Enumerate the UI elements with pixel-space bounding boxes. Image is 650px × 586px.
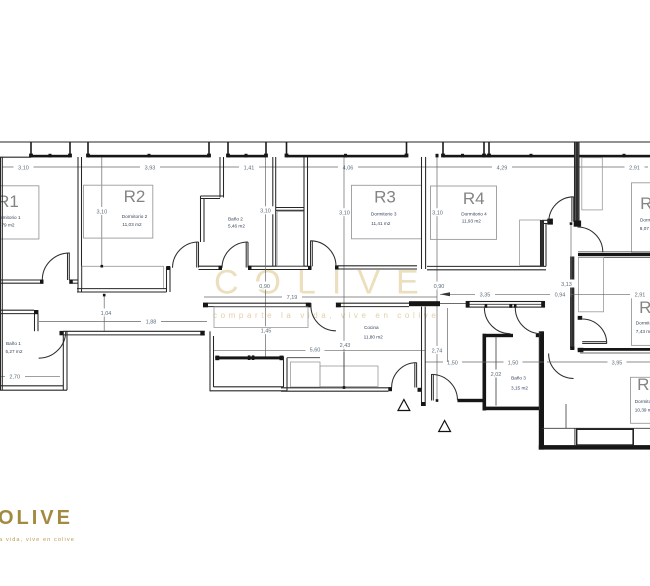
svg-text:Dormitorio 6: Dormitorio 6 — [636, 321, 650, 326]
svg-text:3,10: 3,10 — [18, 165, 29, 171]
svg-text:1,50: 1,50 — [508, 360, 519, 366]
svg-text:Cocina: Cocina — [364, 325, 379, 330]
svg-text:COLIVE: COLIVE — [0, 507, 73, 529]
svg-text:R1: R1 — [0, 192, 19, 211]
svg-text:R7: R7 — [637, 375, 650, 394]
svg-text:Baño 3: Baño 3 — [511, 376, 526, 381]
svg-text:Dormitorio 7: Dormitorio 7 — [635, 399, 650, 404]
svg-text:R5: R5 — [640, 194, 650, 213]
svg-text:3,95: 3,95 — [612, 361, 623, 367]
svg-text:4,29: 4,29 — [497, 165, 508, 171]
svg-text:0,90: 0,90 — [434, 284, 445, 290]
svg-text:Baño 1: Baño 1 — [6, 341, 21, 346]
svg-text:3,93: 3,93 — [145, 165, 156, 171]
svg-text:7,43 m2: 7,43 m2 — [636, 329, 650, 334]
svg-text:1,88: 1,88 — [146, 319, 157, 325]
svg-text:3,10: 3,10 — [339, 211, 350, 217]
svg-text:3,10: 3,10 — [260, 209, 271, 215]
svg-text:1,41: 1,41 — [244, 165, 255, 171]
svg-text:Dormitorio 4: Dormitorio 4 — [461, 212, 487, 217]
svg-text:10,39 m2: 10,39 m2 — [635, 408, 650, 413]
svg-text:2,74: 2,74 — [432, 348, 443, 354]
svg-text:5,46 m2: 5,46 m2 — [228, 224, 245, 229]
svg-text:1,50: 1,50 — [447, 360, 458, 366]
svg-text:11,03 m2: 11,03 m2 — [122, 222, 142, 227]
svg-text:11,41 m2: 11,41 m2 — [371, 221, 391, 226]
svg-text:3,13: 3,13 — [561, 282, 572, 288]
svg-text:7,19: 7,19 — [287, 295, 298, 301]
svg-text:2,70: 2,70 — [9, 375, 20, 381]
svg-text:3,10: 3,10 — [96, 209, 107, 215]
svg-text:3,15 m2: 3,15 m2 — [511, 386, 528, 391]
svg-text:R4: R4 — [463, 189, 485, 208]
svg-text:0,90: 0,90 — [259, 284, 270, 290]
svg-text:3,35: 3,35 — [480, 293, 491, 299]
svg-text:Dormitorio 3: Dormitorio 3 — [371, 211, 397, 216]
svg-text:Dormitorio 1: Dormitorio 1 — [0, 215, 21, 220]
svg-text:R3: R3 — [374, 188, 396, 207]
svg-text:11,80 m2: 11,80 m2 — [364, 335, 384, 340]
svg-text:comparte la vida, vive en coli: comparte la vida, vive en colive — [213, 311, 439, 320]
svg-text:R2: R2 — [124, 187, 146, 206]
svg-text:0,94: 0,94 — [555, 293, 566, 299]
svg-text:Dormitorio 5: Dormitorio 5 — [640, 218, 650, 223]
svg-text:Baño 2: Baño 2 — [228, 217, 243, 222]
svg-text:Dormitorio 2: Dormitorio 2 — [122, 214, 148, 219]
svg-text:2,91: 2,91 — [629, 165, 640, 171]
svg-text:2,43: 2,43 — [340, 343, 351, 349]
svg-text:3,10: 3,10 — [432, 211, 443, 217]
svg-text:2,02: 2,02 — [491, 372, 502, 378]
svg-text:11,93 m2: 11,93 m2 — [462, 219, 482, 224]
svg-text:2,91: 2,91 — [635, 293, 646, 299]
svg-text:8,07 m2: 8,07 m2 — [640, 226, 650, 231]
svg-text:comparte la vida, vive en coli: comparte la vida, vive en colive — [0, 537, 75, 543]
svg-text:5,60: 5,60 — [310, 348, 321, 354]
svg-text:5,27 m2: 5,27 m2 — [6, 349, 23, 354]
svg-text:1,45: 1,45 — [261, 329, 272, 335]
svg-text:R6: R6 — [639, 298, 650, 317]
svg-text:1,04: 1,04 — [101, 311, 112, 317]
